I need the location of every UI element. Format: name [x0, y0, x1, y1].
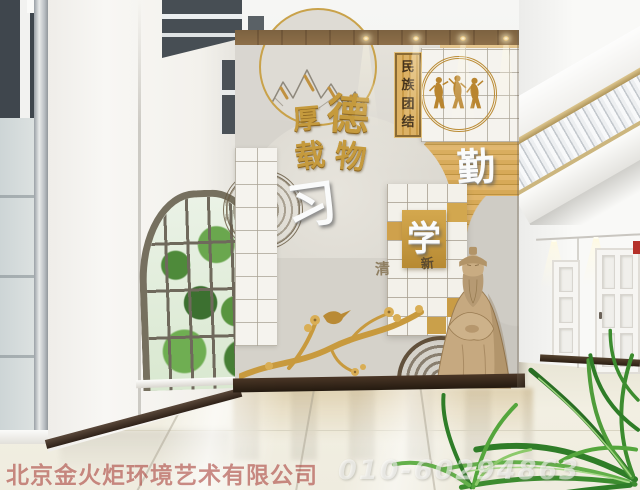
watermark-phone-number: 010-60294863 — [338, 455, 580, 486]
motto-char-zai: 载 — [293, 140, 326, 173]
xi-character: 习 — [284, 177, 340, 233]
motto-char-wu: 物 — [333, 140, 367, 174]
left-curtain-wall-window — [0, 0, 52, 442]
window-mullion — [20, 0, 30, 118]
window-mullion — [162, 14, 242, 19]
balcony-railing — [519, 0, 640, 225]
motto-char-hou: 厚 — [292, 105, 321, 134]
window-silver-frame — [34, 0, 49, 432]
window-dark-pane — [0, 0, 36, 118]
column-edge — [138, 0, 141, 420]
downlight-icon — [503, 36, 509, 41]
second-floor-balcony — [519, 0, 640, 225]
red-sign — [633, 241, 640, 254]
window-mullion — [162, 33, 242, 37]
watermark-company-name: 北京金火炬环境艺术有限公司 — [6, 456, 318, 490]
lobby-render-scene: 民 族 团 结 厚 德 载 物 习 勤 学 清 新 — [0, 0, 640, 490]
door-panel — [602, 255, 615, 289]
qin-character: 勤 — [456, 147, 496, 187]
door-panel — [620, 255, 633, 289]
bird-icon — [323, 310, 351, 324]
window-glass — [0, 118, 34, 432]
wood-light-cove — [235, 30, 519, 45]
downlight-icon — [460, 36, 466, 41]
downlight-icon — [413, 36, 419, 41]
downlight-icon — [363, 36, 369, 41]
door-panel — [559, 267, 573, 292]
